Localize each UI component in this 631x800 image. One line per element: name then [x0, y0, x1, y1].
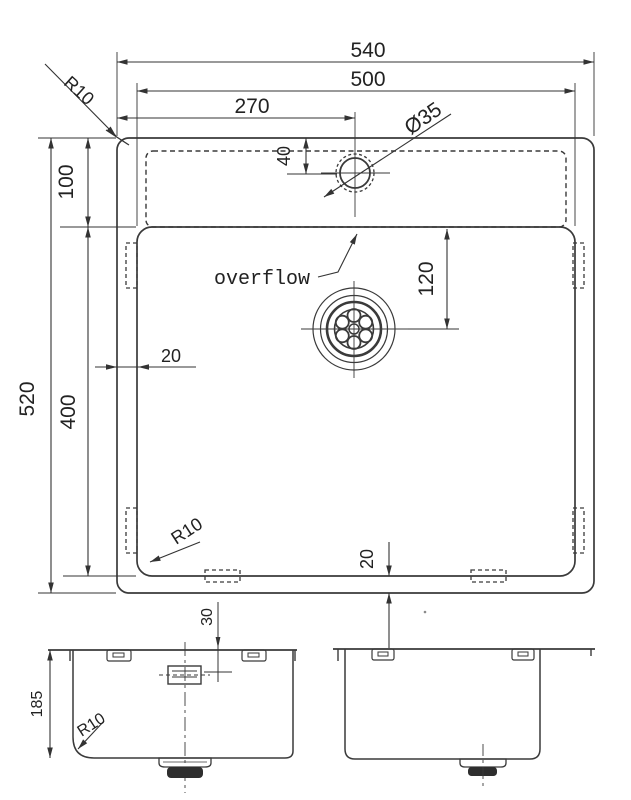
extension-lines — [38, 52, 594, 593]
mounting-clips-front — [107, 650, 266, 661]
dim-bowl-corner-radius: R10 — [150, 514, 206, 562]
dim-overflow-drop: 30 — [199, 602, 232, 682]
dim-overall-width-label: 540 — [350, 39, 385, 62]
mounting-clip — [107, 650, 131, 661]
dim-rim-gap-left: 20 — [95, 346, 196, 370]
mounting-clip — [242, 650, 266, 661]
dim-rim-gap-left-label: 20 — [161, 346, 181, 366]
drain-body — [167, 767, 203, 778]
mounting-clip — [126, 508, 137, 553]
dim-ledge-depth: 100 — [55, 138, 88, 227]
drain-body — [468, 767, 497, 776]
dim-front-corner-radius: R10 — [75, 710, 109, 749]
clip-detail — [378, 652, 388, 656]
dim-faucet-diameter-label: Ø35 — [400, 98, 446, 140]
dim-front-corner-radius-label: R10 — [75, 710, 109, 740]
dim-rim-gap-bottom-label: 20 — [357, 549, 377, 569]
front-section-view: 185 R10 30 — [29, 602, 297, 793]
dim-drain-from-overflow: 120 — [408, 229, 459, 329]
dim-bowl-depth-label: 185 — [29, 691, 46, 718]
overflow-label: overflow — [214, 268, 310, 291]
dim-bowl-length-label: 400 — [57, 394, 80, 429]
dim-bowl-width: 500 — [137, 68, 575, 91]
bowl-outline — [137, 227, 575, 576]
drain-plan — [301, 281, 412, 378]
dim-bowl-length: 400 — [57, 227, 88, 576]
overflow-callout: overflow — [214, 234, 357, 291]
dim-bowl-depth: 185 — [29, 650, 50, 758]
dim-overall-width: 540 — [117, 39, 594, 62]
dim-faucet-from-rim-label: 40 — [274, 146, 294, 166]
dim-faucet-from-rim: 40 — [274, 138, 337, 174]
drawing-canvas: 540 500 270 Ø35 R10 100 4 — [0, 0, 631, 800]
dim-faucet-offset: 270 — [117, 95, 355, 118]
mounting-clip — [512, 649, 534, 660]
dim-rim-gap-bottom: 20 — [357, 542, 389, 648]
bowl-section-outline — [345, 649, 540, 759]
dim-overall-length-label: 520 — [16, 381, 39, 416]
mounting-clip — [126, 243, 137, 288]
faucet-hole — [321, 112, 390, 217]
stray-mark — [424, 611, 427, 614]
plan-dimensions: 540 500 270 Ø35 R10 100 4 — [16, 39, 594, 648]
dim-overall-length: 520 — [16, 138, 51, 593]
side-section-view — [333, 611, 595, 789]
dim-ledge-depth-label: 100 — [55, 164, 78, 199]
ledge-dashed-outline — [146, 151, 566, 227]
clip-detail — [518, 652, 528, 656]
mounting-clips-side — [372, 649, 534, 660]
dim-bowl-corner-radius-label: R10 — [167, 514, 206, 549]
dim-bowl-width-label: 500 — [350, 68, 385, 91]
dim-faucet-offset-label: 270 — [234, 95, 269, 118]
clip-detail — [113, 653, 124, 657]
dim-rim-corner-radius: R10 — [45, 64, 129, 145]
dim-rim-corner-radius-label: R10 — [60, 72, 98, 109]
overflow-box — [159, 666, 210, 684]
clip-detail — [248, 653, 259, 657]
sink-technical-drawing: 540 500 270 Ø35 R10 100 4 — [0, 0, 631, 800]
mounting-clip — [372, 649, 394, 660]
dim-drain-from-overflow-label: 120 — [415, 261, 438, 296]
dim-overflow-drop-label: 30 — [199, 608, 216, 626]
